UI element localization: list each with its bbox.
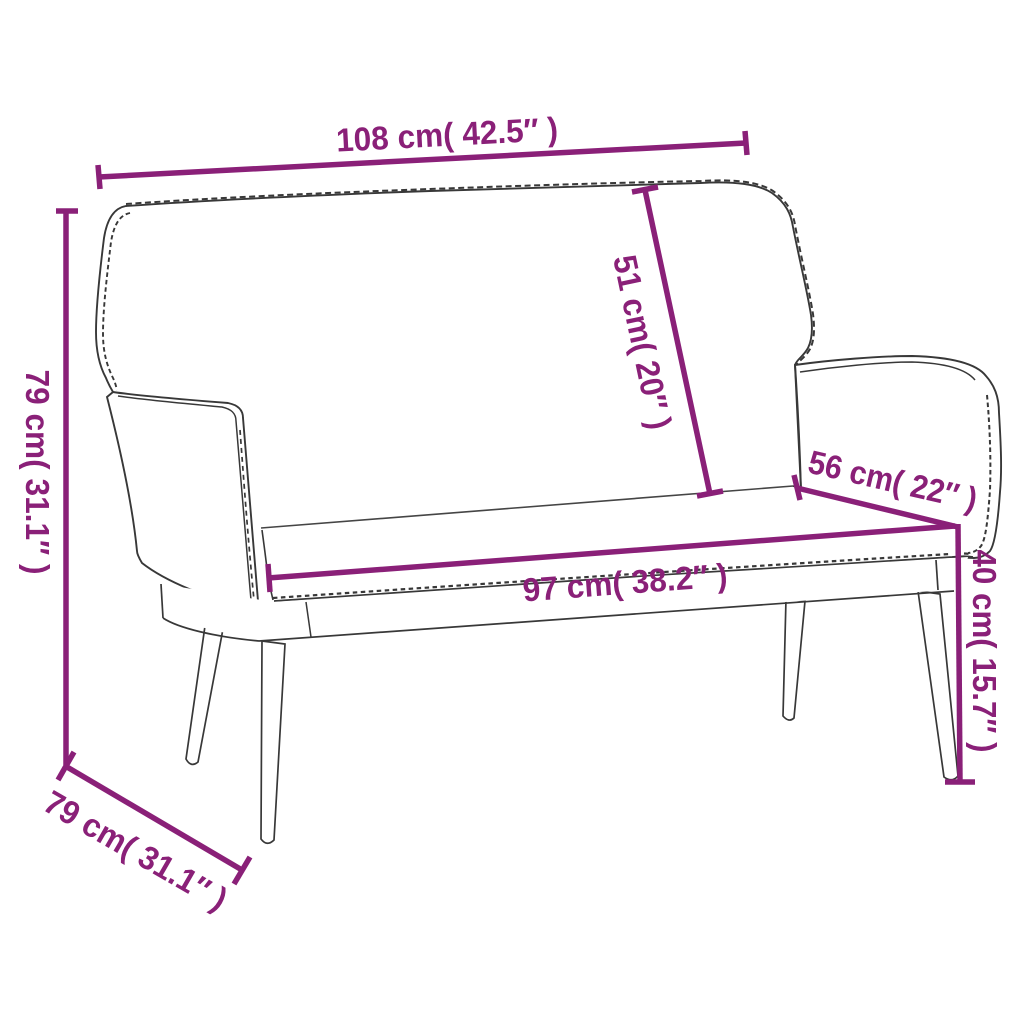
svg-text:40 cm( 15.7″ ): 40 cm( 15.7″ ) xyxy=(966,550,1003,753)
svg-text:79 cm( 31.1″ ): 79 cm( 31.1″ ) xyxy=(19,370,56,575)
